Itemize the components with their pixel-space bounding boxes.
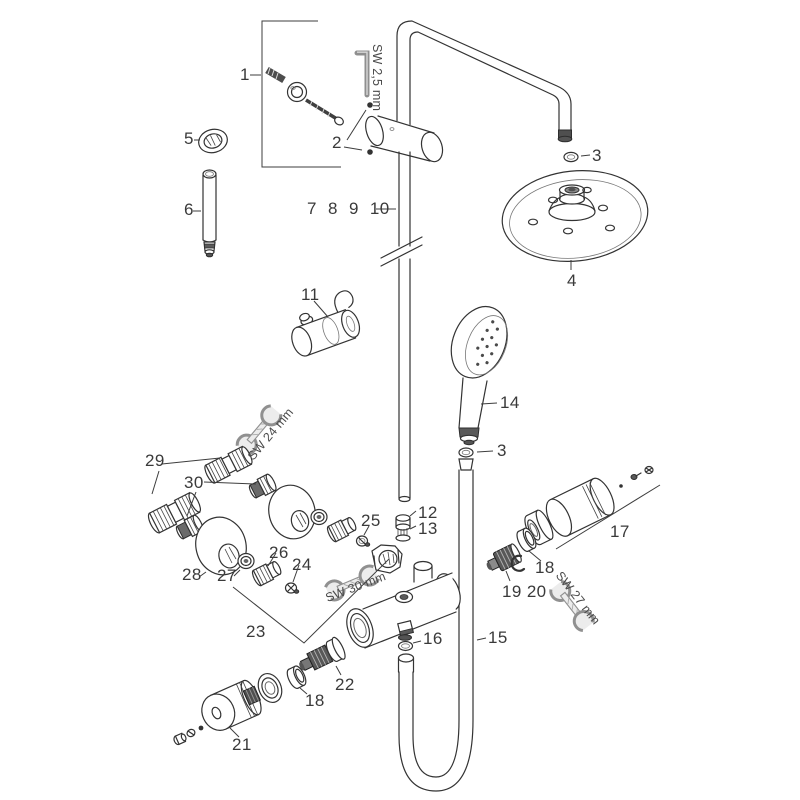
part-label-17: 17: [610, 523, 630, 540]
part-label-4: 4: [567, 272, 577, 289]
part-label-26: 26: [269, 544, 289, 561]
filter-stack-drawing: [396, 511, 416, 541]
slider-holder-drawing: [282, 289, 366, 359]
part-label-15: 15: [488, 629, 508, 646]
part-label-18-bottom: 18: [305, 692, 325, 709]
part-label-18-right: 18: [535, 559, 555, 576]
overhead-shower-drawing: [498, 164, 653, 270]
diagram-canvas: [0, 0, 800, 800]
connector-mirror-drawing: [326, 515, 358, 543]
cartridge-19-20-drawing: [483, 543, 524, 581]
connector-26-drawing: [251, 559, 283, 587]
part-label-3-mid: 3: [497, 442, 507, 459]
extension-pipe-drawing: [203, 170, 216, 257]
ring-nut-drawing: [196, 126, 230, 156]
gasket-arm-drawing: [564, 152, 590, 161]
part-label-14: 14: [500, 394, 520, 411]
part-label-30: 30: [184, 474, 204, 491]
part-label-27: 27: [217, 567, 237, 584]
part-label-7-8-9-10: 7 8 9 10: [307, 200, 390, 217]
hand-shower-drawing: [441, 298, 518, 445]
part-label-23: 23: [246, 623, 266, 640]
gasket-hose-drawing: [459, 448, 493, 457]
part-label-25: 25: [361, 512, 381, 529]
part-label-1: 1: [240, 66, 250, 83]
part-label-2: 2: [332, 134, 342, 151]
part-label-19-20: 19 20: [502, 583, 547, 600]
part-label-24: 24: [292, 556, 312, 573]
tool-label-sw25: SW 2,5 mm: [371, 44, 384, 111]
part-label-13: 13: [418, 520, 438, 537]
part-label-28: 28: [182, 566, 202, 583]
part-label-5: 5: [184, 130, 194, 147]
part-label-6: 6: [184, 201, 194, 218]
handle-knob-drawing: [173, 670, 286, 746]
part-label-3-top: 3: [592, 147, 602, 164]
wall-bracket-drawing: [362, 114, 445, 164]
part-label-11: 11: [301, 286, 319, 303]
holder-screw-set-drawing: [267, 68, 345, 126]
connection-nut-drawing: [372, 545, 402, 573]
part-label-16: 16: [423, 630, 443, 647]
part-label-29: 29: [145, 452, 165, 469]
allen-key-icon: [357, 52, 367, 95]
nut-mirror-drawing: [311, 510, 327, 525]
handle-17-drawing: [520, 467, 660, 551]
screw-24-drawing: [286, 583, 299, 593]
outlet-gasket-drawing: [399, 641, 422, 672]
part-label-21: 21: [232, 736, 252, 753]
part-label-22: 22: [335, 676, 355, 693]
diagram-page: 1 SW 2,5 mm 2 5 6 7 8 9 10 3 4 11 14 3 2…: [0, 0, 800, 800]
